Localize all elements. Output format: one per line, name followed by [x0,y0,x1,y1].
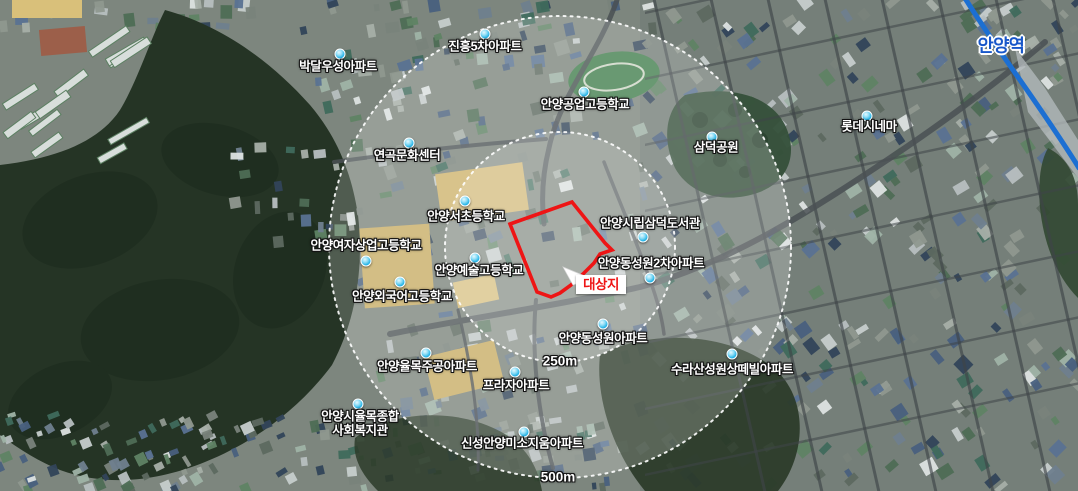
anyang-dongsungwon-2cha-apt-label: 안양동성원2차아파트 [598,257,704,271]
map-stage: 진흥5차아파트박달우성아파트안양공업고등학교롯데시네마삼덕공원연곡문화센터안양서… [0,0,1078,491]
anyang-arts-high-school-marker [470,253,481,264]
anyang-girls-commercial-high-school-marker [361,256,372,267]
yeongok-culture-center-marker [404,138,415,149]
target-site-callout: 대상지 [576,275,626,294]
shinsung-anyang-misozium-apt-marker [519,427,530,438]
samdeok-park-label: 삼덕공원 [694,141,738,155]
anyang-dongsungwon-apt-marker [598,319,609,330]
radius-500m-label: 500m [541,470,576,485]
anyang-samdeok-city-library-marker [638,232,649,243]
shinsung-anyang-misozium-apt-label: 신성안양미소지움아파트 [461,437,583,451]
anyang-yulmok-welfare-center-marker [353,399,364,410]
anyang-dongsungwon-2cha-apt-marker [645,273,656,284]
anyang-foreign-language-high-school-marker [395,277,406,288]
anyang-samdeok-city-library-label: 안양시립삼덕도서관 [600,217,700,231]
anyang-dongsungwon-apt-label: 안양동성원아파트 [559,332,648,346]
plaza-apt-label: 프라자아파트 [483,379,550,393]
jinheung-5cha-apt-marker [480,29,491,40]
anyang-technical-high-school-marker [579,87,590,98]
anyang-technical-high-school-label: 안양공업고등학교 [541,98,630,112]
anyang-arts-high-school-label: 안양예술고등학교 [435,264,524,278]
anyang-foreign-language-high-school-label: 안양외국어고등학교 [352,290,452,304]
anyang-yulmok-jugong-apt-label: 안양율목주공아파트 [377,360,477,374]
anyang-seo-elementary-school-marker [460,196,471,207]
labels-layer: 진흥5차아파트박달우성아파트안양공업고등학교롯데시네마삼덕공원연곡문화센터안양서… [0,0,1078,491]
surasan-sungwon-santevill-apt-label: 수라산성원상떼빌아파트 [671,363,793,377]
samdeok-park-marker [707,132,718,143]
bakdal-wooseong-apt-label: 박달우성아파트 [299,60,377,74]
yeongok-culture-center-label: 연곡문화센터 [374,149,441,163]
anyang-seo-elementary-school-label: 안양서초등학교 [427,210,505,224]
anyang-yulmok-jugong-apt-marker [421,348,432,359]
lotte-cinema-label: 롯데시네마 [841,120,897,134]
anyang-girls-commercial-high-school-label: 안양여자상업고등학교 [310,239,421,253]
anyang-yulmok-welfare-center-label: 안양시율목종합 사회복지관 [321,411,399,438]
surasan-sungwon-santevill-apt-marker [727,349,738,360]
lotte-cinema-marker [862,111,873,122]
anyang-station-label: 안양역 [978,33,1025,58]
bakdal-wooseong-apt-marker [335,49,346,60]
jinheung-5cha-apt-label: 진흥5차아파트 [448,40,521,54]
radius-250m-label: 250m [543,354,578,369]
plaza-apt-marker [510,367,521,378]
